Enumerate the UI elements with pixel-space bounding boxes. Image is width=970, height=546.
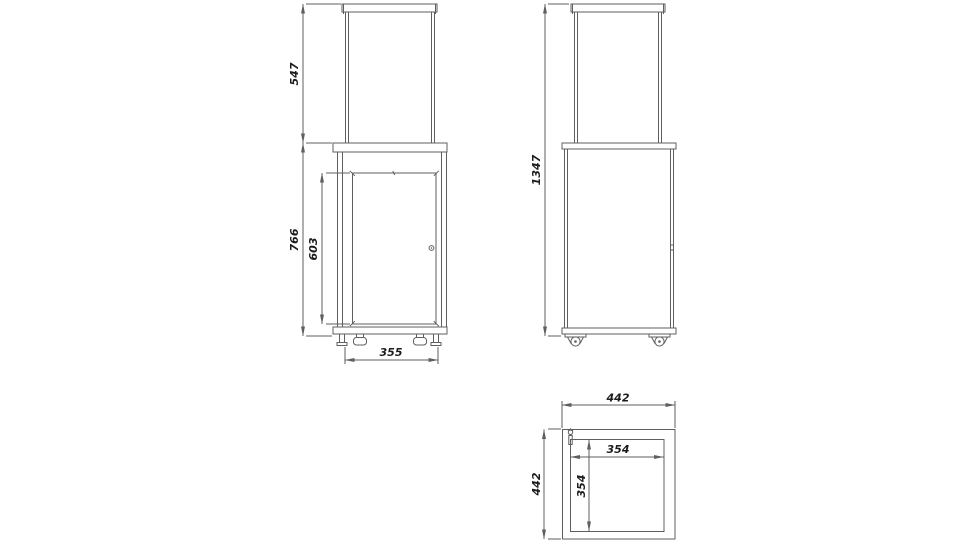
- leveling-foot-left: [337, 343, 347, 346]
- glass-enclosure: [342, 4, 437, 143]
- caster-wheel-left: [354, 338, 367, 346]
- drawing-line: [664, 337, 668, 344]
- body-base-band: [562, 328, 676, 334]
- leveling-foot-right: [431, 343, 441, 346]
- dim-label-feet-spacing: 355: [380, 346, 403, 359]
- dim-top-inner-depth: 354: [575, 440, 589, 531]
- drawing-line: [431, 247, 433, 249]
- drawing-line: [568, 337, 572, 344]
- dim-label-door-height: 603: [307, 237, 320, 260]
- drawing-line: [580, 337, 584, 344]
- drawing-line: [571, 4, 665, 12]
- dim-top-outer-depth: 442: [530, 429, 561, 539]
- door-panel: [350, 171, 439, 326]
- dim-label-overall-height: 1347: [530, 154, 543, 185]
- body-top-band: [333, 143, 447, 152]
- body-cabinet-side: [562, 143, 676, 334]
- glass-enclosure-side: [571, 4, 665, 143]
- dim-front-glass-height: 547: [288, 4, 341, 143]
- dim-label-outer-depth: 442: [530, 472, 543, 496]
- caster-wheel-right: [414, 338, 427, 346]
- body-top-band: [562, 143, 676, 149]
- drawing-line: [652, 337, 656, 344]
- front-view: 547 766 603 355: [288, 4, 447, 364]
- dim-top-outer-width: 442: [562, 392, 675, 429]
- dim-label-inner-width: 354: [607, 443, 630, 456]
- drawing-line: [658, 340, 661, 343]
- dim-front-door-height: 603: [307, 173, 350, 324]
- technical-drawing: 547 766 603 355: [0, 0, 970, 546]
- drawing-line: [574, 340, 577, 343]
- drawing-line: [353, 173, 437, 324]
- dim-label-body-height: 766: [288, 228, 301, 251]
- body-base-band: [333, 327, 447, 334]
- top-view: 442 442 354 354: [530, 392, 675, 540]
- dim-front-feet-spacing: 355: [345, 346, 438, 364]
- dim-label-inner-depth: 354: [575, 475, 588, 498]
- dim-label-glass-height: 547: [288, 62, 301, 85]
- casters-side: [565, 334, 670, 346]
- dim-side-overall-height: 1347: [530, 4, 569, 336]
- drawing-line: [568, 430, 572, 434]
- dim-label-outer-width: 442: [606, 392, 630, 405]
- side-view: 1347: [530, 4, 676, 346]
- drawing-canvas: 547 766 603 355: [0, 0, 970, 546]
- drawing-line: [342, 4, 437, 12]
- base-and-feet: [337, 334, 441, 346]
- door-knob-profile: [671, 245, 674, 250]
- dim-top-inner-width: 354: [571, 443, 664, 457]
